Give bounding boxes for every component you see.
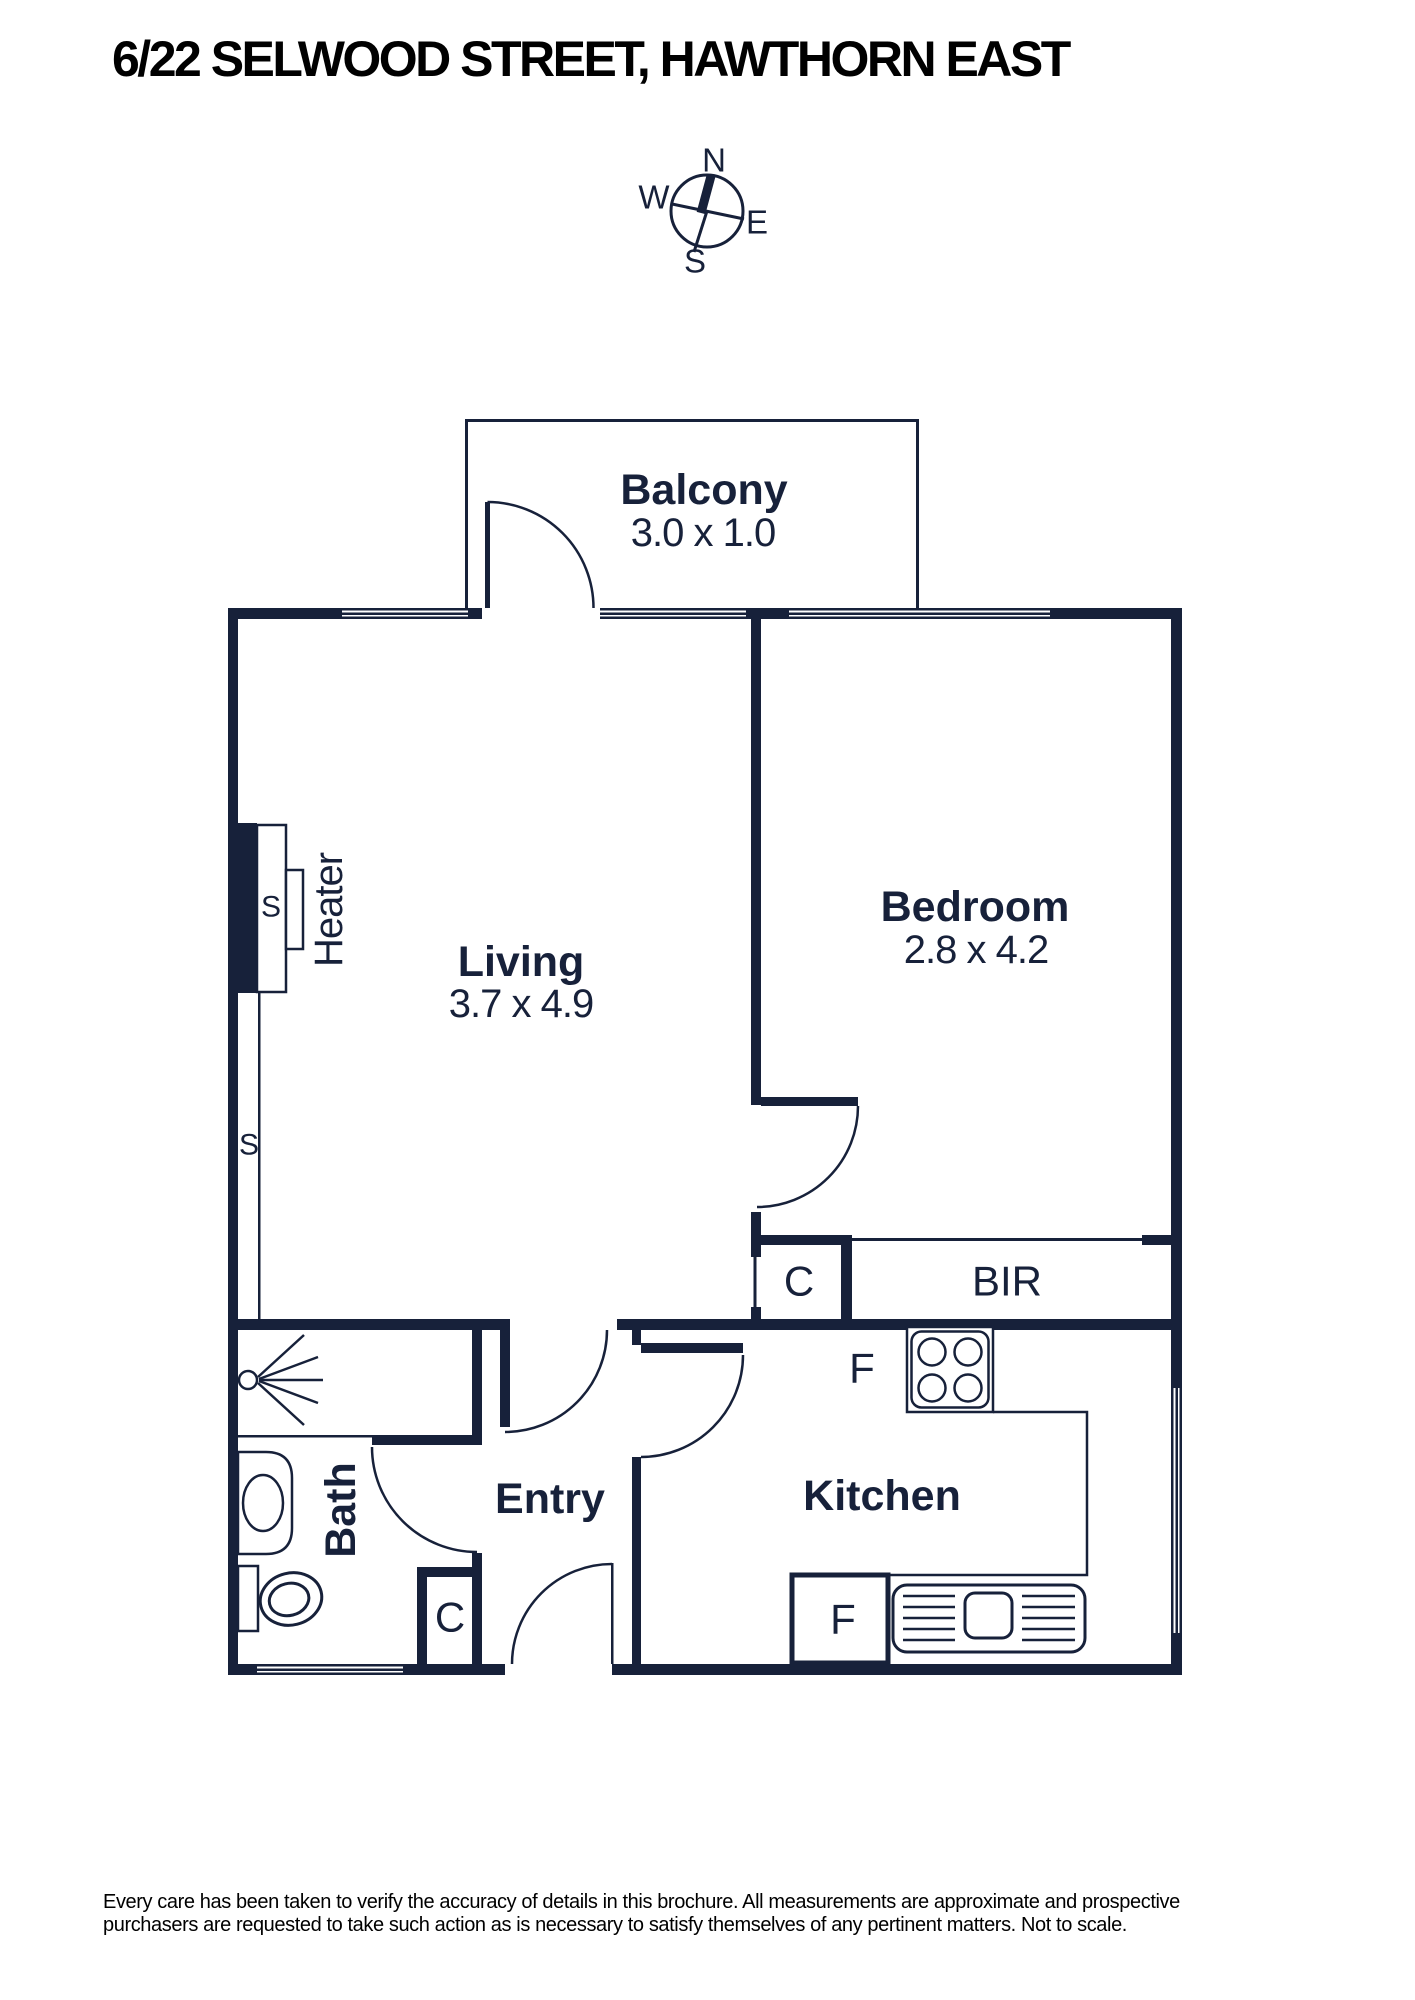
cupboard-entry-label: C [435, 1594, 465, 1641]
living-door-leaf [500, 1330, 510, 1427]
compass-west-label: W [638, 179, 670, 216]
balcony-door-arc [488, 502, 594, 608]
fridge-upper-label: F [849, 1345, 875, 1392]
sink-icon [893, 1585, 1085, 1652]
compass-icon: N W E S [638, 142, 768, 280]
window-top-middle [600, 608, 746, 619]
fridge-lower-label: F [830, 1596, 856, 1643]
switch-wall-label: S [239, 1129, 259, 1162]
living-dims: 3.7 x 4.9 [449, 982, 593, 1026]
compass-north-label: N [702, 142, 726, 179]
kitchen-label: Kitchen [803, 1472, 961, 1520]
compass-east-label: E [746, 204, 768, 241]
disclaimer-line-2: purchasers are requested to take such ac… [103, 1914, 1180, 1937]
window-kitchen [1171, 1388, 1182, 1633]
window-bath [257, 1664, 403, 1675]
window-top-left [342, 608, 468, 619]
bedroom-label: Bedroom [881, 883, 1070, 931]
kitchen-door-arc [641, 1355, 743, 1457]
toilet-icon [238, 1566, 327, 1632]
front-door-leaf [611, 1563, 614, 1664]
floor-plan: N W E S [0, 0, 1415, 2000]
bedroom-door-leaf [761, 1097, 858, 1106]
floorplan-page: 6/22 SELWOOD STREET, HAWTHORN EAST N W E… [0, 0, 1415, 2000]
shower-icon [238, 1335, 372, 1438]
disclaimer: Every care has been taken to verify the … [103, 1891, 1180, 1937]
bedroom-door-arc [757, 1106, 858, 1207]
cupboard-hall-label: C [784, 1258, 814, 1305]
exterior-walls [228, 608, 1182, 1675]
switch-heater-label: S [261, 891, 281, 924]
bedroom-dims: 2.8 x 4.2 [904, 928, 1048, 972]
living-label: Living [458, 938, 585, 986]
compass-south-label: S [684, 243, 706, 280]
bath-label: Bath [317, 1462, 365, 1558]
balcony-door-leaf [485, 502, 490, 608]
bath-door-arc [372, 1447, 477, 1552]
heater-label: Heater [307, 852, 351, 967]
bir-label: BIR [972, 1258, 1042, 1305]
kitchen-door-leaf [641, 1343, 743, 1353]
doors [372, 1097, 858, 1664]
bath-door-leaf [372, 1435, 482, 1445]
cooktop-icon [907, 1327, 993, 1412]
front-door-arc [512, 1564, 612, 1664]
balcony-label: Balcony [620, 466, 787, 514]
interior-walls [228, 608, 1171, 1675]
living-door-arc [505, 1330, 607, 1432]
vanity-basin-icon [238, 1452, 292, 1554]
balcony-dims: 3.0 x 1.0 [631, 511, 775, 555]
disclaimer-line-1: Every care has been taken to verify the … [103, 1891, 1180, 1914]
window-top-right [789, 608, 1050, 619]
entry-label: Entry [495, 1475, 605, 1523]
